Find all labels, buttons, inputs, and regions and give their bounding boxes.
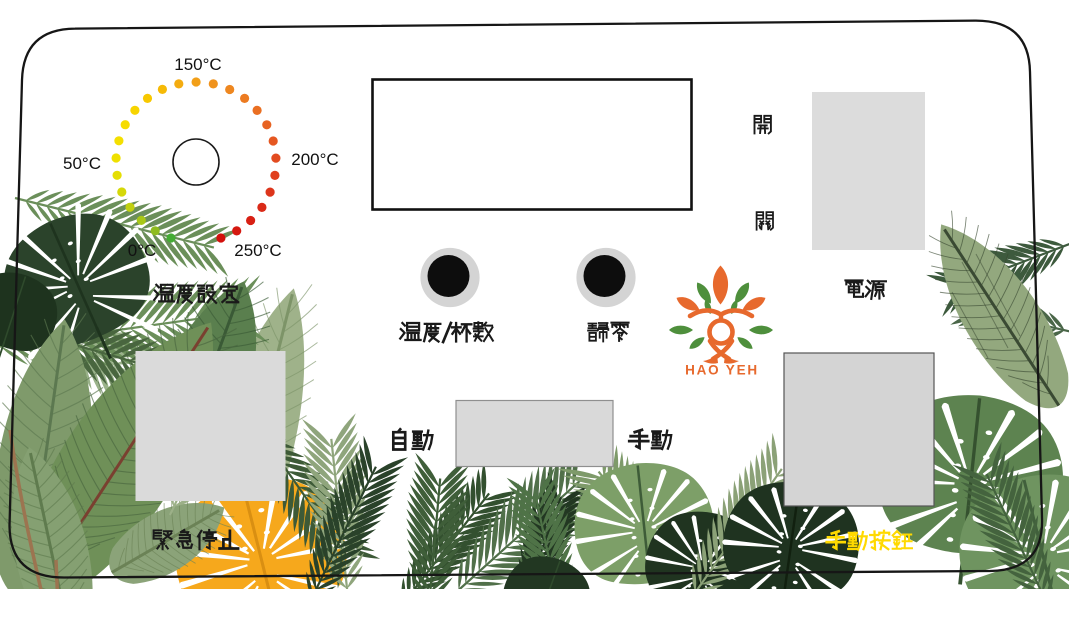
svg-text:250°C: 250°C	[234, 241, 281, 260]
svg-text:HAO YEH: HAO YEH	[685, 363, 759, 378]
svg-text:50°C: 50°C	[63, 154, 101, 173]
svg-text:0°C: 0°C	[128, 241, 157, 260]
svg-text:200°C: 200°C	[291, 150, 338, 169]
svg-text:150°C: 150°C	[174, 55, 221, 74]
